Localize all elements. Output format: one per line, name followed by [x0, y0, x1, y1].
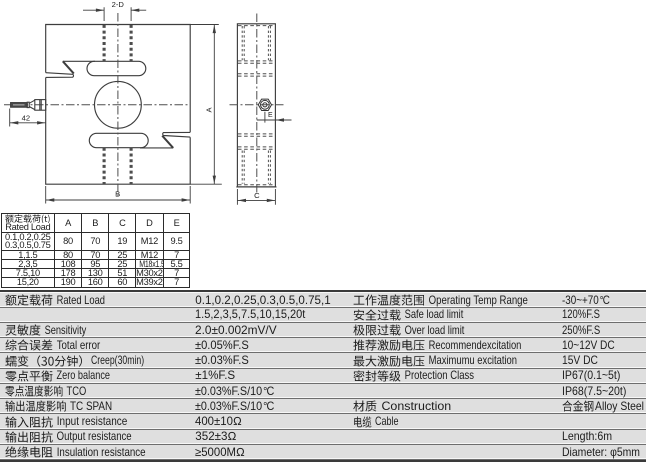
svg-text:42: 42 [22, 113, 30, 122]
svg-text:A: A [205, 107, 214, 113]
svg-text:C: C [254, 191, 260, 200]
svg-text:E: E [268, 112, 273, 119]
svg-text:B: B [115, 190, 120, 199]
svg-text:2-D: 2-D [112, 0, 125, 9]
